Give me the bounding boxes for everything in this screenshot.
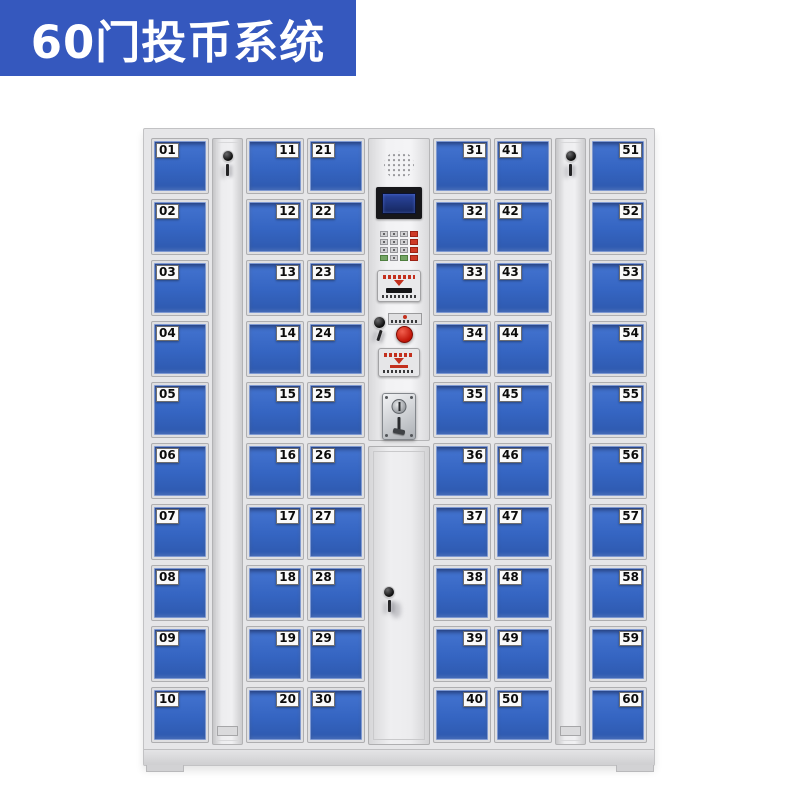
red-bar	[390, 365, 408, 368]
door-number-label: 42	[499, 204, 522, 219]
door-number-label: 58	[619, 570, 642, 585]
door-number-label: 54	[619, 326, 642, 341]
keypad-key[interactable]	[400, 247, 408, 253]
banner-title: 60门投币系统	[31, 6, 326, 71]
locker-door-15[interactable]: 15	[246, 382, 304, 438]
coin-acceptor[interactable]	[382, 393, 416, 440]
door-number-label: 44	[499, 326, 522, 341]
door-number-label: 33	[463, 265, 486, 280]
keypad-key[interactable]	[380, 247, 388, 253]
door-number-label: 02	[156, 204, 179, 219]
key-icon[interactable]	[376, 330, 382, 341]
door-number-label: 47	[499, 509, 522, 524]
instruction-text-red	[383, 275, 415, 279]
status-text	[391, 320, 419, 323]
door-number-label: 46	[499, 448, 522, 463]
arrow-down-icon	[394, 358, 404, 364]
vent-slot	[217, 726, 238, 736]
door-number-label: 40	[463, 692, 486, 707]
locker-door-13[interactable]: 13	[246, 260, 304, 316]
lock-cylinder-icon[interactable]	[384, 587, 394, 597]
door-number-label: 39	[463, 631, 486, 646]
keypad-key[interactable]	[390, 247, 398, 253]
door-number-label: 41	[499, 143, 522, 158]
door-number-label: 24	[312, 326, 335, 341]
lock-cylinder-icon[interactable]	[374, 317, 385, 328]
door-number-label: 60	[619, 692, 642, 707]
keypad-key-red[interactable]	[410, 255, 418, 261]
cabinet-foot-right	[616, 765, 654, 772]
locker-door-53[interactable]: 53	[589, 260, 647, 316]
door-number-label: 25	[312, 387, 335, 402]
door-number-label: 05	[156, 387, 179, 402]
door-number-label: 17	[276, 509, 299, 524]
screw-icon	[385, 434, 388, 437]
locker-door-29[interactable]: 29	[307, 626, 365, 682]
status-panel	[388, 313, 422, 325]
locker-door-42[interactable]: 42	[494, 199, 552, 255]
door-number-label: 56	[619, 448, 642, 463]
door-number-label: 06	[156, 448, 179, 463]
locker-door-47[interactable]: 47	[494, 504, 552, 560]
keypad[interactable]	[380, 231, 418, 261]
locker-column-1: 01020304050607080910	[151, 138, 209, 745]
instruction-panel	[378, 348, 420, 376]
door-number-label: 51	[619, 143, 642, 158]
lock-cylinder-icon[interactable]	[223, 151, 233, 161]
locker-door-46[interactable]: 46	[494, 443, 552, 499]
title-banner: 60门投币系统	[0, 0, 356, 76]
door-number-label: 31	[463, 143, 486, 158]
locker-door-06[interactable]: 06	[151, 443, 209, 499]
locker-door-17[interactable]: 17	[246, 504, 304, 560]
door-number-label: 04	[156, 326, 179, 341]
keypad-key[interactable]	[400, 239, 408, 245]
door-number-label: 30	[312, 692, 335, 707]
locker-door-37[interactable]: 37	[433, 504, 491, 560]
locker-door-36[interactable]: 36	[433, 443, 491, 499]
locker-door-23[interactable]: 23	[307, 260, 365, 316]
locker-door-22[interactable]: 22	[307, 199, 365, 255]
door-number-label: 16	[276, 448, 299, 463]
locker-door-25[interactable]: 25	[307, 382, 365, 438]
instruction-text-dark	[382, 295, 416, 298]
door-number-label: 38	[463, 570, 486, 585]
locker-door-33[interactable]: 33	[433, 260, 491, 316]
locker-door-55[interactable]: 55	[589, 382, 647, 438]
door-number-label: 09	[156, 631, 179, 646]
speaker-icon	[384, 151, 414, 179]
keypad-key[interactable]	[390, 239, 398, 245]
service-strip-right	[555, 138, 586, 745]
screw-icon	[385, 396, 388, 399]
door-number-label: 26	[312, 448, 335, 463]
locker-door-10[interactable]: 10	[151, 687, 209, 743]
door-number-label: 55	[619, 387, 642, 402]
door-number-label: 57	[619, 509, 642, 524]
door-number-label: 32	[463, 204, 486, 219]
locker-door-03[interactable]: 03	[151, 260, 209, 316]
locker-door-14[interactable]: 14	[246, 321, 304, 377]
door-number-label: 49	[499, 631, 522, 646]
locker-door-54[interactable]: 54	[589, 321, 647, 377]
locker-door-02[interactable]: 02	[151, 199, 209, 255]
locker-door-30[interactable]: 30	[307, 687, 365, 743]
key-lock-icon[interactable]	[564, 151, 578, 176]
instruction-text-dark	[383, 370, 415, 373]
coin-return-button[interactable]	[396, 326, 413, 343]
vent-slot	[560, 726, 581, 736]
locker-door-24[interactable]: 24	[307, 321, 365, 377]
locker-door-05[interactable]: 05	[151, 382, 209, 438]
locker-door-56[interactable]: 56	[589, 443, 647, 499]
door-number-label: 27	[312, 509, 335, 524]
lock-cylinder-icon[interactable]	[566, 151, 576, 161]
door-number-label: 18	[276, 570, 299, 585]
door-number-label: 52	[619, 204, 642, 219]
locker-door-09[interactable]: 09	[151, 626, 209, 682]
instruction-text-red	[384, 353, 414, 357]
locker-column-2: 11121314151617181920	[246, 138, 304, 745]
locker-door-04[interactable]: 04	[151, 321, 209, 377]
door-number-label: 19	[276, 631, 299, 646]
coin-return-lever[interactable]	[393, 428, 406, 435]
door-number-label: 35	[463, 387, 486, 402]
keypad-key-green[interactable]	[380, 255, 388, 261]
locker-door-39[interactable]: 39	[433, 626, 491, 682]
door-number-label: 34	[463, 326, 486, 341]
door-number-label: 15	[276, 387, 299, 402]
door-number-label: 21	[312, 143, 335, 158]
screw-icon	[410, 396, 413, 399]
door-number-label: 37	[463, 509, 486, 524]
locker-door-08[interactable]: 08	[151, 565, 209, 621]
control-column	[368, 138, 430, 745]
locker-door-21[interactable]: 21	[307, 138, 365, 194]
door-number-label: 11	[276, 143, 299, 158]
door-number-label: 01	[156, 143, 179, 158]
door-number-label: 50	[499, 692, 522, 707]
keypad-key-red[interactable]	[410, 239, 418, 245]
door-number-label: 03	[156, 265, 179, 280]
lcd-screen	[382, 193, 416, 214]
cabinet-base	[144, 749, 654, 765]
locker-door-40[interactable]: 40	[433, 687, 491, 743]
locker-door-52[interactable]: 52	[589, 199, 647, 255]
door-number-label: 48	[499, 570, 522, 585]
locker-door-35[interactable]: 35	[433, 382, 491, 438]
locker-door-60[interactable]: 60	[589, 687, 647, 743]
door-number-label: 28	[312, 570, 335, 585]
locker-door-16[interactable]: 16	[246, 443, 304, 499]
locker-door-07[interactable]: 07	[151, 504, 209, 560]
door-number-label: 20	[276, 692, 299, 707]
locker-door-11[interactable]: 11	[246, 138, 304, 194]
keypad-key-red[interactable]	[410, 231, 418, 237]
keypad-key[interactable]	[390, 255, 398, 261]
card-slot[interactable]	[386, 288, 412, 293]
locker-columns: 01020304050607080910 1112131415161718192…	[151, 138, 647, 745]
keypad-key[interactable]	[400, 231, 408, 237]
locker-door-26[interactable]: 26	[307, 443, 365, 499]
locker-door-49[interactable]: 49	[494, 626, 552, 682]
key-lock-icon[interactable]	[221, 151, 235, 176]
coin-slot[interactable]	[392, 399, 407, 414]
keypad-key[interactable]	[380, 231, 388, 237]
locker-column-6: 51525354555657585960	[589, 138, 647, 745]
door-number-label: 43	[499, 265, 522, 280]
indicator-light-icon	[403, 315, 407, 319]
keychain-shadow	[391, 602, 401, 618]
door-number-label: 12	[276, 204, 299, 219]
locker-door-57[interactable]: 57	[589, 504, 647, 560]
locker-door-27[interactable]: 27	[307, 504, 365, 560]
locker-door-44[interactable]: 44	[494, 321, 552, 377]
card-reader[interactable]	[377, 270, 421, 302]
locker-door-31[interactable]: 31	[433, 138, 491, 194]
arrow-down-icon	[394, 280, 404, 286]
service-strip-left	[212, 138, 243, 745]
key-lock-icon[interactable]	[382, 587, 396, 612]
door-number-label: 59	[619, 631, 642, 646]
door-number-label: 10	[156, 692, 179, 707]
locker-door-01[interactable]: 01	[151, 138, 209, 194]
locker-door-18[interactable]: 18	[246, 565, 304, 621]
door-number-label: 23	[312, 265, 335, 280]
locker-door-34[interactable]: 34	[433, 321, 491, 377]
door-number-label: 07	[156, 509, 179, 524]
locker-cabinet: 01020304050607080910 1112131415161718192…	[143, 128, 655, 766]
locker-column-3: 21222324252627282930	[307, 138, 365, 745]
locker-door-38[interactable]: 38	[433, 565, 491, 621]
keypad-key-red[interactable]	[410, 247, 418, 253]
locker-door-41[interactable]: 41	[494, 138, 552, 194]
locker-door-45[interactable]: 45	[494, 382, 552, 438]
locker-door-12[interactable]: 12	[246, 199, 304, 255]
locker-door-51[interactable]: 51	[589, 138, 647, 194]
locker-door-50[interactable]: 50	[494, 687, 552, 743]
locker-door-28[interactable]: 28	[307, 565, 365, 621]
door-number-label: 08	[156, 570, 179, 585]
cabinet-foot-left	[146, 765, 184, 772]
locker-door-20[interactable]: 20	[246, 687, 304, 743]
door-number-label: 53	[619, 265, 642, 280]
door-number-label: 13	[276, 265, 299, 280]
key-icon[interactable]	[569, 164, 572, 176]
locker-door-59[interactable]: 59	[589, 626, 647, 682]
locker-door-58[interactable]: 58	[589, 565, 647, 621]
door-number-label: 45	[499, 387, 522, 402]
control-panel	[368, 138, 430, 441]
door-number-label: 14	[276, 326, 299, 341]
keypad-key[interactable]	[390, 231, 398, 237]
keypad-key-green[interactable]	[400, 255, 408, 261]
door-number-label: 29	[312, 631, 335, 646]
locker-door-43[interactable]: 43	[494, 260, 552, 316]
locker-door-32[interactable]: 32	[433, 199, 491, 255]
locker-door-19[interactable]: 19	[246, 626, 304, 682]
keypad-key[interactable]	[380, 239, 388, 245]
locker-column-5: 41424344454647484950	[494, 138, 552, 745]
locker-column-4: 31323334353637383940	[433, 138, 491, 745]
control-column-door[interactable]	[368, 446, 430, 745]
key-icon[interactable]	[226, 164, 229, 176]
lcd-display	[376, 187, 422, 219]
door-number-label: 36	[463, 448, 486, 463]
door-number-label: 22	[312, 204, 335, 219]
locker-door-48[interactable]: 48	[494, 565, 552, 621]
key-lock-icon[interactable]	[372, 317, 386, 341]
screw-icon	[410, 434, 413, 437]
control-lock-row	[369, 312, 429, 343]
